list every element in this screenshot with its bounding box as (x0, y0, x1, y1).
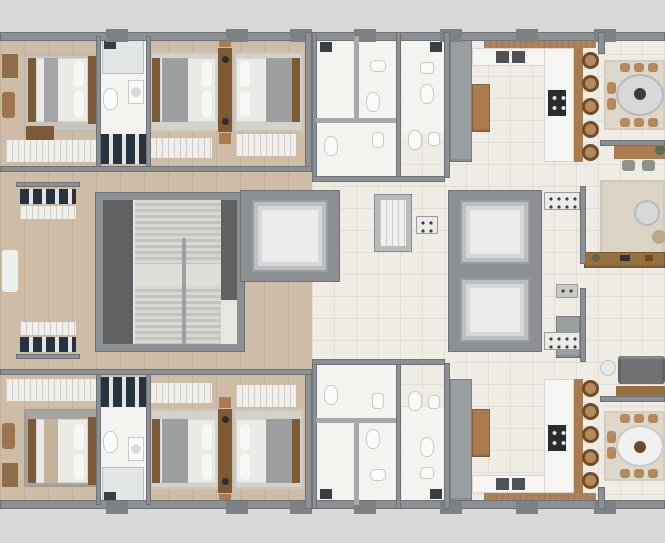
wall-stub-dining-bottom (598, 487, 605, 509)
pantry-counter-top (472, 84, 490, 132)
dining-chair-t3 (648, 63, 658, 72)
tall-units-top (450, 40, 472, 162)
stool-bottom-3 (582, 426, 599, 443)
balcony-chair-bottom (2, 423, 15, 449)
sideboard-plant (592, 254, 600, 262)
sofa (618, 356, 665, 384)
shower-right-top-fixture (430, 42, 442, 52)
wall-pillar-b6 (516, 501, 538, 514)
sconce-top-2 (222, 118, 229, 125)
wall-bedroom-c-bottom (305, 369, 312, 509)
stair-rail (182, 238, 186, 344)
dining-chair-t5 (634, 118, 644, 127)
bed-a-top-throw (44, 58, 58, 122)
bed-a-bottom-throw (44, 419, 58, 483)
dining-chair-b6 (648, 469, 658, 478)
wall-bath-center-right-bottom (396, 363, 401, 509)
dining-chair-b1 (620, 414, 630, 423)
stool-bottom-4 (582, 449, 599, 466)
wall-pillar-t2 (226, 29, 248, 42)
dining-chair-t7 (607, 82, 616, 94)
dining-chair-t1 (620, 63, 630, 72)
wall-pillar-b1 (106, 501, 128, 514)
bed-b-top-pillow-2 (202, 91, 212, 117)
bed-a-top-rail (28, 58, 36, 122)
dining-chair-b4 (620, 469, 630, 478)
kitchenette-bottom-cabinet (20, 322, 76, 335)
sconce-top-1 (222, 56, 229, 63)
wall-bath-left-bottom-1 (96, 373, 101, 505)
bed-b-top-pillow-1 (202, 61, 212, 87)
sink-center-bottom-2 (372, 393, 384, 409)
stair-flight-upper (135, 200, 221, 264)
dining-chair-b2 (634, 414, 644, 423)
stool-bottom-5 (582, 472, 599, 489)
bed-a-bottom-pillow-2 (74, 454, 84, 480)
meter-counter-top (544, 192, 580, 210)
toilet-right-bottom (420, 437, 434, 457)
wall-bedroom-c-top (305, 32, 312, 172)
wardrobe-c-top (236, 134, 296, 156)
dining-chair-t6 (648, 118, 658, 127)
wardrobe-a-bottom (6, 379, 98, 401)
dining-chair-t2 (634, 63, 644, 72)
wall-bath-center-mid-v-bottom (354, 423, 359, 505)
bed-c-top-pillow-2 (240, 91, 250, 117)
balcony-planter-bottom (2, 463, 18, 487)
wall-pillar-t6 (516, 29, 538, 42)
toilet-right-bottom-2 (408, 391, 422, 411)
wall-bath-left-bottom-2 (146, 373, 151, 505)
kitchen-sink-bottom-1 (496, 478, 509, 490)
nightstand-bottom-1 (219, 397, 231, 408)
bed-c-top-pillow-1 (240, 61, 250, 87)
duct-grille (380, 200, 406, 246)
sink-center-bottom-1 (370, 469, 386, 481)
toilet-center-bottom-2 (324, 385, 338, 405)
wall-bath-left-top-1 (96, 36, 101, 168)
desk-chair-2 (642, 160, 655, 171)
tall-units-bottom (450, 379, 472, 501)
living-side-table (600, 360, 616, 376)
kitchen-counter-top (472, 48, 548, 66)
wall-living-top (600, 140, 665, 146)
cooktop-bottom (548, 425, 566, 451)
sink-right-top-2 (428, 132, 440, 146)
bed-c-bottom-pillow-2 (240, 454, 250, 480)
kitchen-sink-top-2 (512, 51, 525, 63)
bed-c-bottom-blanket (266, 419, 292, 483)
stair-shaft-right (221, 200, 237, 300)
toilet-center-top-1 (366, 92, 380, 112)
stool-top-3 (582, 98, 599, 115)
bed-a-top-pillow-2 (74, 91, 84, 117)
wall-left-apartment-bottom (0, 369, 312, 375)
ac-bench-left (2, 250, 18, 292)
dining-chair-b8 (607, 447, 616, 459)
stool-top-5 (582, 144, 599, 161)
bed-c-bottom-foot (292, 419, 300, 483)
sideboard-deco-2 (645, 255, 653, 261)
balcony-chair-top (2, 92, 15, 118)
dining-chair-b3 (648, 414, 658, 423)
toilet-center-bottom-1 (366, 429, 380, 449)
wall-kitchenette-top (16, 182, 80, 187)
sink-right-bottom-2 (428, 395, 440, 409)
bed-c-bottom-pillow-1 (240, 424, 250, 450)
bed-b-bottom-blanket (162, 419, 188, 483)
bed-a-bottom-pillow-1 (74, 424, 84, 450)
shower-center-bottom-fixture (320, 489, 332, 499)
bed-b-bottom-pillow-1 (202, 424, 212, 450)
wall-bath-center-mid-v-top (354, 36, 359, 118)
toilet-right-top-2 (408, 130, 422, 150)
floor-plan-canvas (0, 0, 665, 543)
bed-b-top-blanket (162, 58, 188, 122)
kitchen-sink-top-1 (496, 51, 509, 63)
sideboard-deco-1 (620, 255, 630, 261)
dining-centerpiece-top (634, 88, 646, 100)
stool-top-2 (582, 75, 599, 92)
vanity-cabinet-a-top (100, 134, 146, 164)
elevator-2-cab (460, 200, 530, 264)
wall-pillar-t1 (106, 29, 128, 42)
stair-landing (135, 264, 221, 286)
sink-right-bottom (420, 467, 434, 479)
meter-counter-bottom (544, 332, 580, 350)
wall-bath-center-left-top (312, 32, 317, 178)
wall-corridor-top (312, 176, 445, 182)
wardrobe-b-top (150, 138, 212, 158)
wall-core-right-lower (580, 288, 586, 362)
vanity-cabinet-a-bottom (100, 377, 146, 407)
stair-flight-lower (135, 286, 221, 344)
elevator-3-cab (460, 278, 530, 342)
toilet-center-top-2 (324, 136, 338, 156)
stool-top-4 (582, 121, 599, 138)
nightstand-top-2 (219, 133, 231, 144)
wall-bath-center-mid-h-top (316, 118, 396, 123)
sink-center-top-2 (372, 132, 384, 148)
shower-right-bottom-fixture (430, 489, 442, 499)
sconce-bottom-1 (222, 416, 229, 423)
toilet-right-top (420, 84, 434, 104)
shower-center-top-fixture (320, 42, 332, 52)
meter-grille-box (416, 216, 438, 234)
wall-kitchen-left-top (444, 32, 450, 178)
bed-c-top-blanket (266, 58, 292, 122)
wardrobe-b-bottom (150, 383, 212, 403)
dining-chair-b5 (634, 469, 644, 478)
dining-chair-t4 (620, 118, 630, 127)
tv-cabinet-a-top (26, 126, 54, 141)
wall-core-right-upper (580, 186, 586, 264)
wall-bath-center-left-bottom (312, 363, 317, 509)
toilet-a-top (103, 88, 118, 110)
bed-a-bottom-rail (28, 419, 36, 483)
coffee-table-large (634, 200, 660, 226)
wall-stub-dining-top (598, 32, 605, 54)
wardrobe-a-top (6, 140, 98, 162)
bed-c-top-foot (292, 58, 300, 122)
bed-b-top-foot (152, 58, 160, 122)
wall-pillar-b2 (226, 501, 248, 514)
kitchenette-top-cabinet (20, 206, 76, 219)
sink-center-top-1 (370, 60, 386, 72)
toilet-a-bottom (103, 431, 118, 453)
kitchen-counter-bottom (472, 475, 548, 493)
sconce-bottom-2 (222, 478, 229, 485)
kitchenette-top-counter (20, 189, 76, 204)
outside-area-top (0, 0, 665, 32)
bed-a-top-headboard (88, 56, 96, 124)
desk-plant (655, 145, 665, 155)
wall-kitchenette-bottom (16, 354, 80, 359)
wall-bath-center-right-top (396, 32, 401, 178)
bed-b-bottom-foot (152, 419, 160, 483)
wall-left-apartment-top (0, 166, 312, 172)
stair-shaft-left (103, 200, 133, 344)
sink-a-bottom-basin (131, 444, 141, 454)
kitchen-sink-bottom-2 (512, 478, 525, 490)
desk-chair-1 (622, 160, 635, 171)
wall-corridor-bottom (312, 359, 445, 365)
elevator-1-cab (252, 200, 328, 272)
stool-top-1 (582, 52, 599, 69)
bed-a-top-pillow-1 (74, 61, 84, 87)
kitchenette-bottom-counter (20, 337, 76, 352)
sink-right-top (420, 62, 434, 74)
coffee-table-small (652, 230, 665, 244)
wall-living-bottom (600, 396, 665, 402)
wardrobe-c-bottom (236, 385, 296, 407)
dining-chair-t8 (607, 98, 616, 110)
balcony-planter-top (2, 54, 18, 78)
stool-bottom-2 (582, 403, 599, 420)
sink-a-top-basin (131, 87, 141, 97)
pantry-counter-bottom (472, 409, 490, 457)
wall-kitchen-left-bottom (444, 363, 450, 509)
bed-b-bottom-pillow-2 (202, 454, 212, 480)
wall-bath-left-top-2 (146, 36, 151, 168)
service-panel (556, 284, 578, 298)
outside-area-bottom (0, 509, 665, 543)
bed-a-bottom-headboard (88, 417, 96, 485)
dining-chair-b7 (607, 431, 616, 443)
dining-centerpiece-bottom (634, 441, 646, 453)
cooktop-top (548, 90, 566, 116)
stool-bottom-1 (582, 380, 599, 397)
